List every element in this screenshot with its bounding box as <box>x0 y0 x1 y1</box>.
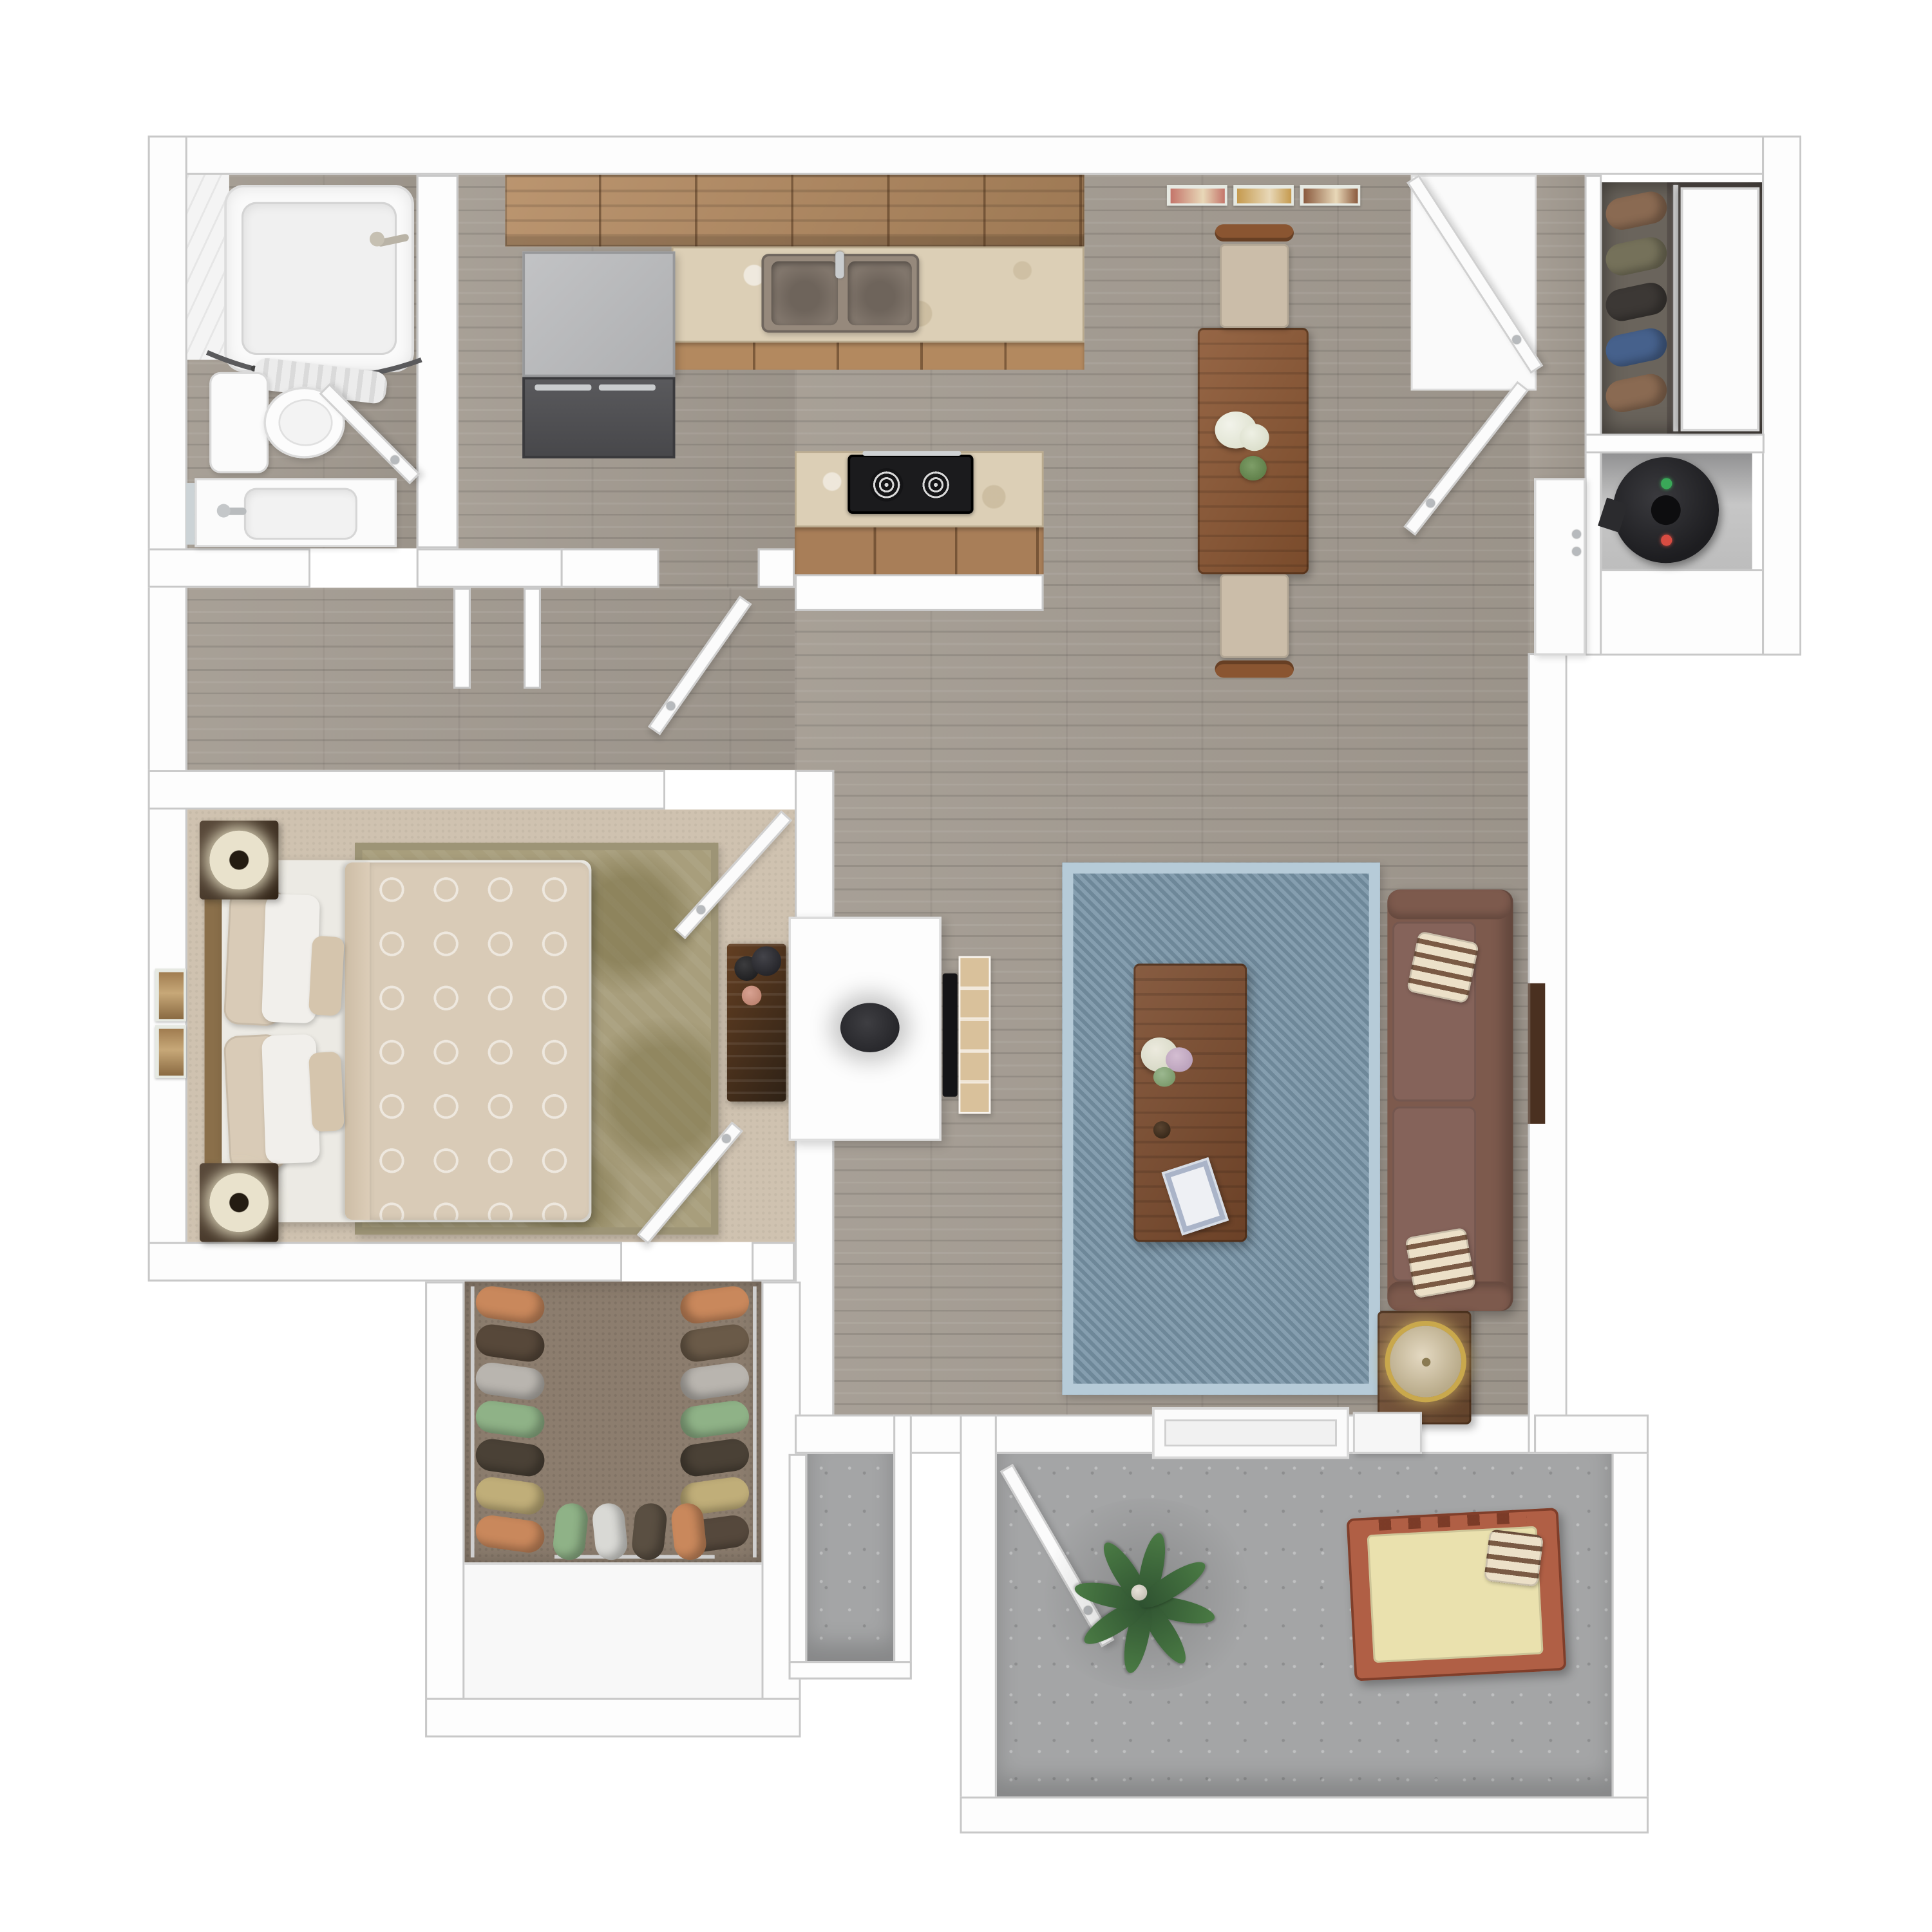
tv-screen <box>943 974 958 1097</box>
dresser-copper-dish <box>742 986 762 1006</box>
bedroom-wall-frame-1 <box>155 969 186 1021</box>
wall-niche-stub-left <box>453 588 471 689</box>
wall-niche-stub-right <box>524 588 541 689</box>
shower-tile-wall <box>187 175 229 360</box>
hearth-tile <box>959 956 991 988</box>
wall-coatcloset-divider <box>1585 433 1765 453</box>
side-table-lamp-finial <box>1422 1358 1430 1366</box>
water-heater-light-green <box>1661 478 1672 489</box>
wall-art-frame-2 <box>1233 185 1294 206</box>
bed-accent-pillow-bottom <box>308 1052 345 1132</box>
cooktop-burner-right <box>922 471 950 499</box>
bed-duvet <box>365 862 589 1220</box>
walkin-closet-shelf <box>464 1562 761 1698</box>
wall-patio-right <box>1612 1414 1649 1833</box>
bathroom-mirror <box>186 483 194 545</box>
wall-hall-top <box>561 548 659 587</box>
patio-door-step <box>1353 1412 1422 1454</box>
wall-patio-left <box>960 1414 996 1833</box>
bedroom-wall-frame-2 <box>155 1025 186 1078</box>
wall-art-frame-3 <box>1300 185 1361 206</box>
fireplace-hearth <box>959 956 991 1114</box>
hearth-tile <box>959 988 991 1019</box>
wall-left <box>148 135 187 1281</box>
island-cabinets <box>795 527 1043 574</box>
wall-bathroom-bottom-left <box>148 548 311 587</box>
bed-accent-pillow-top <box>308 936 345 1016</box>
console-bowl <box>840 1003 900 1052</box>
dining-chair-bottom-seat <box>1220 574 1289 658</box>
lower-cabinets <box>672 343 1084 370</box>
wall-closetblock-left <box>1585 175 1602 656</box>
sink-faucet <box>835 251 844 278</box>
wall-art-frame-1 <box>1167 185 1227 206</box>
wall-bedroom-top <box>148 770 666 810</box>
lounge-striped-pillow <box>1484 1529 1544 1587</box>
dining-chair-top-seat <box>1220 244 1289 328</box>
wall-patio-bottom <box>960 1797 1649 1833</box>
shower-head-knob <box>370 232 384 247</box>
dining-plant-sprig <box>1240 456 1267 480</box>
refrigerator <box>522 251 675 377</box>
sink-basin-right <box>848 261 911 325</box>
wall-closetblock-right <box>1762 135 1801 655</box>
upper-cabinet-seams <box>505 175 1084 247</box>
patio-door-threshold-track <box>1164 1419 1337 1446</box>
pantry-handle-2 <box>1572 547 1580 556</box>
refrigerator-handle-left <box>535 384 591 391</box>
wall-walkin-left <box>425 1282 464 1738</box>
lounge-chair <box>1347 1508 1567 1681</box>
walkin-rod-right <box>753 1286 757 1557</box>
wall-island-base <box>795 574 1043 611</box>
nightstand-lamp-bottom <box>209 1173 269 1232</box>
coat-closet-rod <box>1673 185 1678 431</box>
wall-patio-top-right <box>1534 1414 1649 1454</box>
hearth-tile <box>959 1051 991 1083</box>
wall-storage-right <box>893 1414 912 1679</box>
nightstand-lamp-top <box>209 831 269 890</box>
bathtub-basin <box>241 202 397 355</box>
dresser-bowl-2 <box>752 946 781 976</box>
coat-closet-sliding-door <box>1681 187 1759 431</box>
pantry-handle-1 <box>1572 530 1580 538</box>
wall-top <box>148 135 1799 175</box>
coffee-table-flowers-green <box>1153 1067 1175 1087</box>
walkin-rod-left <box>471 1286 475 1557</box>
wall-storage-left <box>789 1454 808 1680</box>
wall-hall-pillar <box>758 548 795 587</box>
pantry-cabinet <box>1534 478 1586 656</box>
wall-bedroom-bottom-stub <box>752 1242 795 1282</box>
patio-storage-floor <box>807 1454 893 1661</box>
wall-storage-bottom <box>789 1661 912 1680</box>
hearth-tile <box>959 1083 991 1114</box>
refrigerator-handle-right <box>599 384 656 391</box>
sofa-star-pillow-top <box>1406 931 1479 1003</box>
wall-walkin-bottom <box>425 1698 801 1738</box>
wall-bathroom-bottom-right <box>417 548 565 587</box>
cooktop <box>848 455 973 514</box>
water-heater-knob <box>1651 495 1681 525</box>
vanity-faucet-knob <box>217 504 231 518</box>
plant-stem <box>1131 1585 1147 1601</box>
sink-basin-left <box>772 261 838 325</box>
cooktop-rail <box>862 451 961 456</box>
cooktop-burner-left <box>870 468 904 502</box>
hearth-tile <box>959 1019 991 1051</box>
dining-chair-top-rail <box>1215 224 1294 241</box>
dining-flowers-white-2 <box>1240 424 1269 451</box>
toilet-seat <box>278 399 332 446</box>
coffee-table-bowl <box>1153 1121 1171 1139</box>
vanity-sink <box>244 488 357 540</box>
toilet-tank <box>209 372 269 473</box>
hallway-floor <box>187 588 795 770</box>
wall-shelf <box>1528 983 1545 1124</box>
sofa-star-pillow-bottom <box>1405 1227 1476 1299</box>
water-heater-light-red <box>1661 535 1672 545</box>
dining-wall-art-row <box>1167 185 1364 207</box>
bed-duvet-fold <box>345 862 370 1220</box>
dining-chair-bottom-rail <box>1215 661 1294 678</box>
wall-bedroom-bottom <box>148 1242 623 1282</box>
sofa-arm-top <box>1387 889 1510 919</box>
floor-plan <box>0 0 1932 1932</box>
